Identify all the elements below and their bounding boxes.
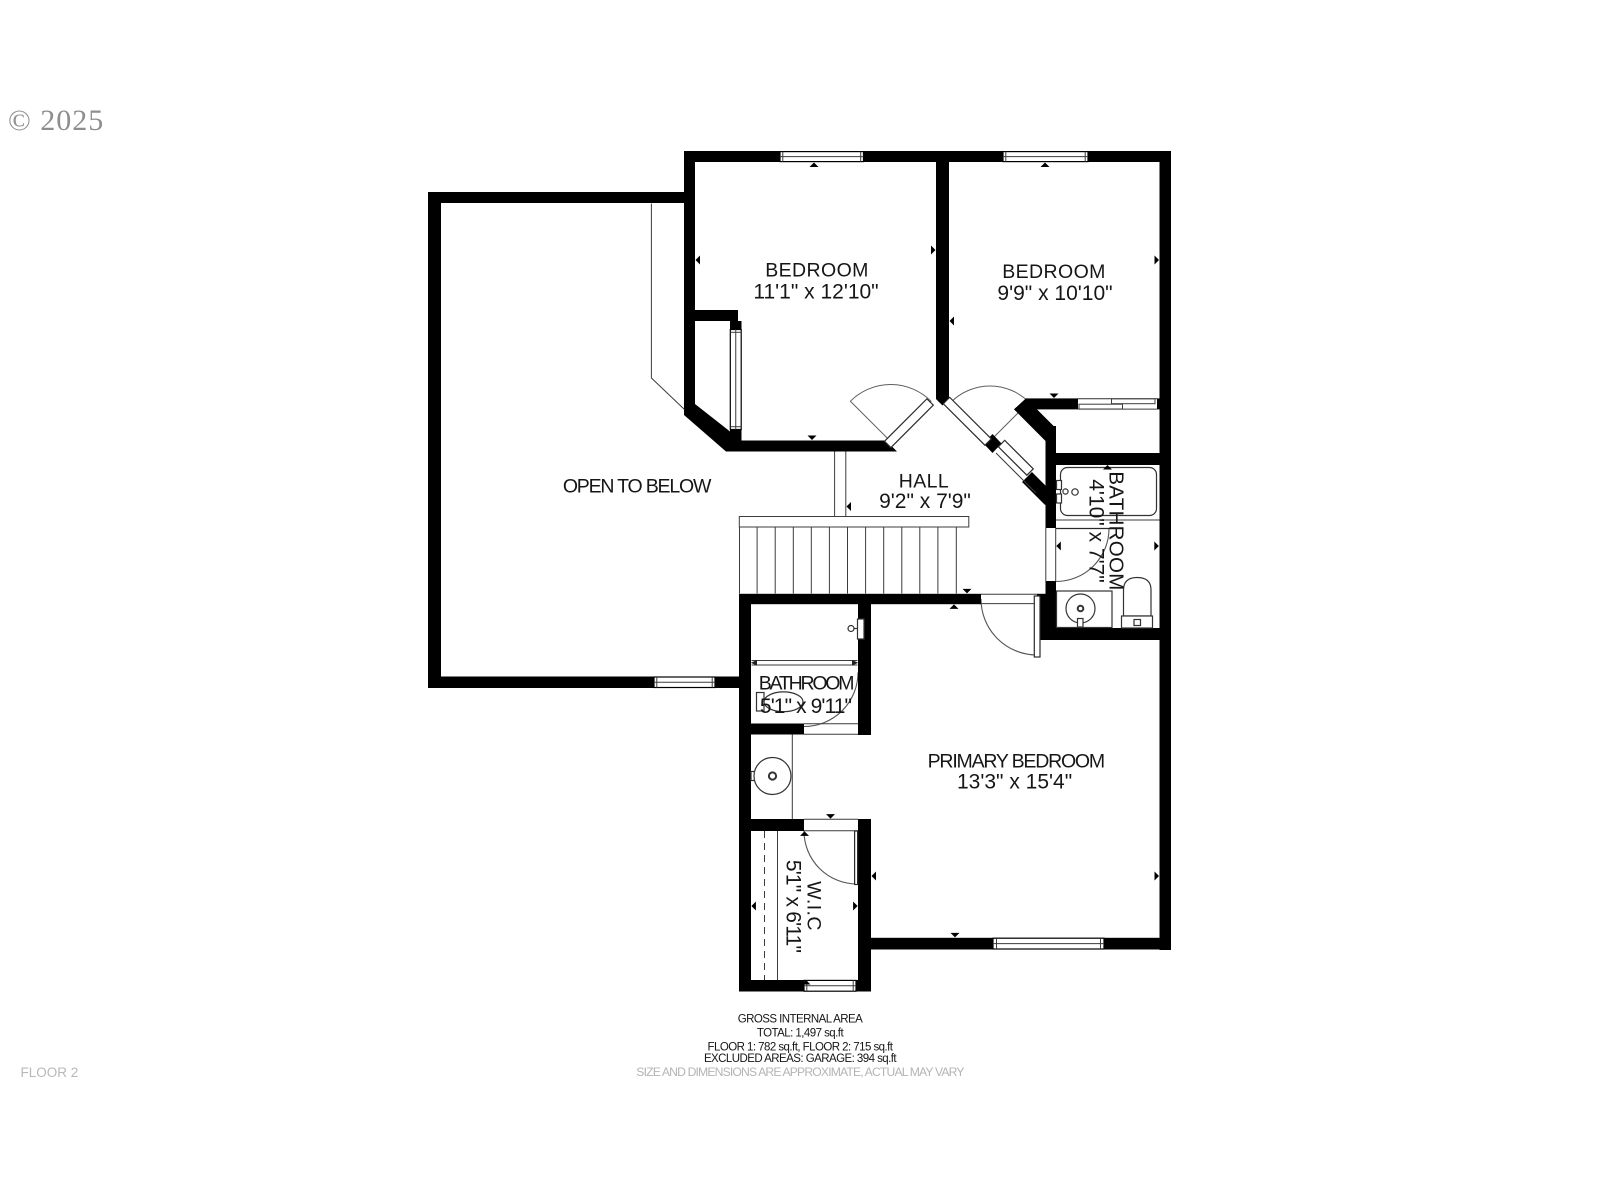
svg-text:4'10" x 7'7": 4'10" x 7'7" <box>1085 479 1108 583</box>
svg-text:BEDROOM: BEDROOM <box>765 260 869 282</box>
svg-text:FLOOR 1: 782 sq.ft, FLOOR 2: 7: FLOOR 1: 782 sq.ft, FLOOR 2: 715 sq.ft <box>708 1042 894 1054</box>
svg-text:13'3" x 15'4": 13'3" x 15'4" <box>957 771 1072 794</box>
svg-text:W.I.C: W.I.C <box>802 881 824 931</box>
svg-text:TOTAL: 1,497 sq.ft: TOTAL: 1,497 sq.ft <box>757 1028 845 1040</box>
svg-text:BEDROOM: BEDROOM <box>1002 261 1106 283</box>
svg-text:© 2025: © 2025 <box>8 104 104 137</box>
svg-text:BATHROOM: BATHROOM <box>759 673 854 695</box>
svg-text:5'1" x 9'11": 5'1" x 9'11" <box>760 695 852 718</box>
svg-text:9'9" x 10'10": 9'9" x 10'10" <box>997 282 1112 305</box>
svg-text:EXCLUDED AREAS: GARAGE: 394 sq: EXCLUDED AREAS: GARAGE: 394 sq.ft <box>704 1053 897 1065</box>
svg-text:PRIMARY BEDROOM: PRIMARY BEDROOM <box>928 751 1104 773</box>
svg-text:OPEN TO BELOW: OPEN TO BELOW <box>563 476 712 498</box>
svg-text:SIZE AND DIMENSIONS ARE APPROX: SIZE AND DIMENSIONS ARE APPROXIMATE, ACT… <box>636 1065 964 1079</box>
svg-text:9'2" x 7'9": 9'2" x 7'9" <box>879 490 971 513</box>
svg-text:FLOOR 2: FLOOR 2 <box>21 1065 79 1080</box>
svg-text:GROSS INTERNAL AREA: GROSS INTERNAL AREA <box>738 1014 863 1026</box>
svg-text:5'1" x 6'11": 5'1" x 6'11" <box>781 860 804 953</box>
svg-text:11'1" x 12'10": 11'1" x 12'10" <box>753 281 878 304</box>
